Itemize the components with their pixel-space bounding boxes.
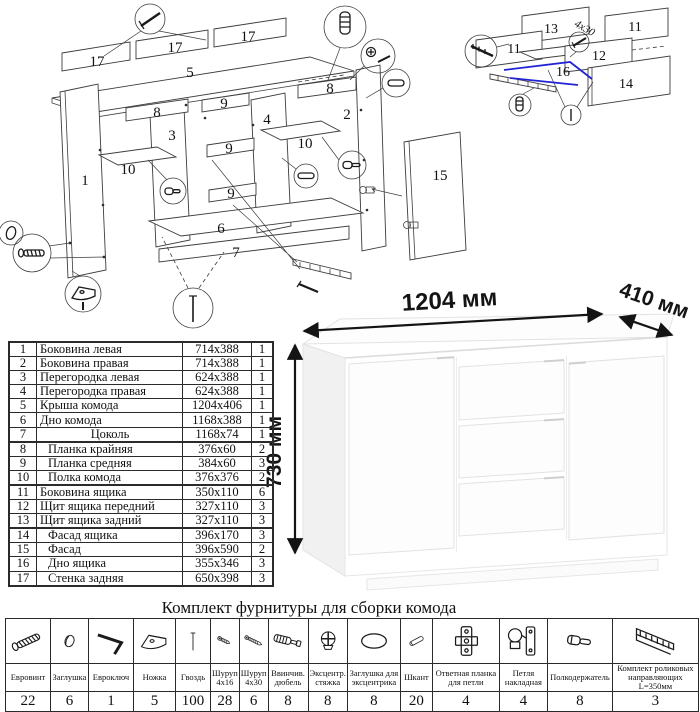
hardware-item-qty: 20 bbox=[400, 692, 432, 712]
parts-cell-size: 714x388 bbox=[183, 342, 252, 357]
hardware-icon-cell bbox=[268, 619, 308, 664]
parts-cell-name: Боковина ящика bbox=[37, 485, 183, 500]
parts-cell-size: 1204x406 bbox=[183, 399, 252, 413]
part-number-label: 3 bbox=[168, 128, 176, 144]
hardware-icon-cell bbox=[89, 619, 134, 664]
part-number-label: 9 bbox=[220, 96, 228, 112]
hardware-item-qty: 8 bbox=[347, 692, 400, 712]
hardware-icon-cell bbox=[400, 619, 432, 664]
parts-cell-qty: 3 bbox=[252, 557, 274, 571]
parts-cell-qty: 2 bbox=[252, 442, 274, 457]
part-number-label: 6 bbox=[217, 221, 225, 237]
parts-table-row: 4Перегородка правая624x3881 bbox=[9, 385, 273, 399]
parts-cell-name: Планка крайняя bbox=[37, 442, 183, 457]
hardware-item-qty: 4 bbox=[432, 692, 499, 712]
parts-cell-num: 2 bbox=[9, 357, 37, 371]
hardware-item-qty: 6 bbox=[51, 692, 89, 712]
hardware-icon-cell bbox=[308, 619, 347, 664]
hardware-kit-table: ЕвровинтЗаглушкаЕвроключНожкаГвоздьШуруп… bbox=[5, 618, 699, 712]
part-number-label: 10 bbox=[121, 162, 136, 178]
hardware-item-qty: 8 bbox=[547, 692, 612, 712]
assembly-instruction-page: { "main_diagram": { "part_labels": [ {"t… bbox=[0, 0, 700, 700]
parts-table-row: 16Дно ящика355x3463 bbox=[9, 557, 273, 571]
hardware-item-qty: 8 bbox=[308, 692, 347, 712]
part-number-label: 1 bbox=[81, 173, 89, 189]
hardware-icon-cell bbox=[176, 619, 211, 664]
parts-cell-num: 4 bbox=[9, 385, 37, 399]
parts-cell-num: 3 bbox=[9, 371, 37, 385]
hardware-item-name: Евровинт bbox=[6, 664, 51, 692]
nail-icon bbox=[139, 13, 160, 29]
hardware-item-qty: 5 bbox=[134, 692, 176, 712]
parts-cell-qty: 3 bbox=[252, 500, 274, 514]
parts-table-row: 14Фасад ящика396x1703 bbox=[9, 528, 273, 543]
hardware-item-qty: 100 bbox=[176, 692, 211, 712]
parts-table-row: 15Фасад396x5902 bbox=[9, 543, 273, 557]
parts-cell-name: Крыша комода bbox=[37, 399, 183, 413]
part-number-label: 7 bbox=[232, 245, 240, 261]
parts-cell-size: 376x60 bbox=[183, 442, 252, 457]
parts-cell-num: 13 bbox=[9, 514, 37, 529]
hardware-item-name: Заглушка bbox=[51, 664, 89, 692]
parts-cell-size: 396x170 bbox=[183, 528, 252, 543]
hardware-icons-row bbox=[6, 619, 699, 664]
cap-icon bbox=[52, 622, 87, 660]
shelf-pin-icon bbox=[549, 622, 611, 660]
hardware-item-name: Шкант bbox=[400, 664, 432, 692]
hardware-icon-cell bbox=[612, 619, 698, 664]
hardware-icon-cell bbox=[499, 619, 547, 664]
hardware-item-qty: 22 bbox=[6, 692, 51, 712]
parts-table-row: 5Крыша комода1204x4061 bbox=[9, 399, 273, 413]
part-number-label: 8 bbox=[153, 105, 161, 121]
parts-cell-name: Боковина правая bbox=[37, 357, 183, 371]
parts-cell-qty: 1 bbox=[252, 427, 274, 442]
part-number-label: 16 bbox=[556, 65, 570, 80]
parts-cell-name: Фасад ящика bbox=[37, 528, 183, 543]
parts-cell-qty: 2 bbox=[252, 543, 274, 557]
parts-table-row: 9Планка средняя384x603 bbox=[9, 456, 273, 470]
parts-cell-num: 8 bbox=[9, 442, 37, 457]
parts-cell-qty: 1 bbox=[252, 371, 274, 385]
parts-cell-qty: 1 bbox=[252, 357, 274, 371]
hardware-item-qty: 1 bbox=[89, 692, 134, 712]
parts-cell-name: Планка средняя bbox=[37, 456, 183, 470]
hardware-icon-cell bbox=[432, 619, 499, 664]
parts-cell-name: Стенка задняя bbox=[37, 571, 183, 586]
hardware-item-name: Полкодержатель bbox=[547, 664, 612, 692]
roller-guide bbox=[490, 74, 556, 92]
cap-icon bbox=[5, 225, 18, 240]
screw-small-icon bbox=[212, 622, 238, 660]
parts-table-row: 11Боковина ящика350x1106 bbox=[9, 485, 273, 500]
parts-table-row: 10Полка комода376x3762 bbox=[9, 470, 273, 485]
hexkey-icon bbox=[90, 622, 132, 660]
parts-cell-name: Дно ящика bbox=[37, 557, 183, 571]
part-number-label: 2 bbox=[343, 107, 351, 123]
hardware-icon-cell bbox=[134, 619, 176, 664]
parts-cell-qty: 3 bbox=[252, 514, 274, 529]
cam-icon bbox=[310, 622, 346, 660]
cap-callout bbox=[0, 221, 23, 245]
parts-cell-qty: 6 bbox=[252, 485, 274, 500]
hardware-item-qty: 6 bbox=[239, 692, 268, 712]
parts-cell-name: Дно комода bbox=[37, 413, 183, 427]
part-number-label: 4 bbox=[263, 112, 271, 128]
nail-callout bbox=[548, 70, 593, 125]
parts-cell-size: 1168x74 bbox=[183, 427, 252, 442]
parts-table-row: 2Боковина правая714x3881 bbox=[9, 357, 273, 371]
parts-table-row: 13Щит ящика задний327x1103 bbox=[9, 514, 273, 529]
parts-cell-name: Боковина левая bbox=[37, 342, 183, 357]
hardware-item-name: Евроключ bbox=[89, 664, 134, 692]
hardware-item-qty: 8 bbox=[268, 692, 308, 712]
part-number-label: 9 bbox=[225, 141, 233, 157]
parts-cell-size: 396x590 bbox=[183, 543, 252, 557]
drawer-assembly-diagram: 4x30 131111121614 bbox=[452, 0, 700, 140]
product-dimension-view: 1204 мм 410 мм 730 мм bbox=[270, 287, 700, 617]
hardware-icon-cell bbox=[547, 619, 612, 664]
hardware-item-name: Заглушка для эксцентрика bbox=[347, 664, 400, 692]
parts-table-row: 6Дно комода1168x3881 bbox=[9, 413, 273, 427]
parts-table-row: 1Боковина левая714x3881 bbox=[9, 342, 273, 357]
parts-cell-qty: 3 bbox=[252, 528, 274, 543]
dowel-screw-icon bbox=[340, 12, 350, 34]
parts-cell-size: 355x346 bbox=[183, 557, 252, 571]
oval-cap-icon bbox=[349, 622, 399, 660]
parts-cell-name: Перегородка правая bbox=[37, 385, 183, 399]
foot-icon bbox=[135, 622, 174, 660]
dowel-icon bbox=[298, 173, 314, 179]
dowel-screw-icon bbox=[270, 622, 307, 660]
left-door bbox=[349, 357, 454, 555]
hardware-item-qty: 28 bbox=[211, 692, 240, 712]
part-number-label: 14 bbox=[619, 77, 633, 92]
parts-cell-size: 650x398 bbox=[183, 571, 252, 586]
dowel-icon bbox=[402, 622, 431, 660]
parts-table-body: 1Боковина левая714x38812Боковина правая7… bbox=[9, 342, 273, 586]
foot-icon bbox=[72, 287, 95, 310]
cam-icon bbox=[367, 48, 391, 63]
parts-cell-size: 350x110 bbox=[183, 485, 252, 500]
parts-list-table: 1Боковина левая714x38812Боковина правая7… bbox=[8, 341, 274, 587]
part-number-label: 9 bbox=[227, 186, 235, 202]
nail-icon bbox=[177, 622, 209, 660]
parts-cell-num: 15 bbox=[9, 543, 37, 557]
parts-cell-size: 1168x388 bbox=[183, 413, 252, 427]
parts-cell-name: Щит ящика задний bbox=[37, 514, 183, 529]
hardware-kit-title: Комплект фурнитуры для сборки комода bbox=[9, 598, 609, 618]
parts-cell-qty: 1 bbox=[252, 385, 274, 399]
part-number-label: 15 bbox=[433, 168, 448, 184]
parts-table-row: 8Планка крайняя376x602 bbox=[9, 442, 273, 457]
parts-cell-qty: 2 bbox=[252, 470, 274, 485]
parts-table-row: 7Цоколь1168x741 bbox=[9, 427, 273, 442]
part-number-label: 12 bbox=[592, 49, 606, 64]
parts-cell-size: 327x110 bbox=[183, 500, 252, 514]
parts-cell-num: 14 bbox=[9, 528, 37, 543]
hardware-icon-cell bbox=[347, 619, 400, 664]
right-side-panel bbox=[356, 65, 386, 251]
part-number-label: 10 bbox=[298, 136, 313, 152]
parts-cell-num: 5 bbox=[9, 399, 37, 413]
hardware-item-name: Гвоздь bbox=[176, 664, 211, 692]
parts-cell-qty: 3 bbox=[252, 571, 274, 586]
parts-cell-size: 376x376 bbox=[183, 470, 252, 485]
parts-cell-name: Фасад bbox=[37, 543, 183, 557]
parts-table-row: 3Перегородка левая624x3881 bbox=[9, 371, 273, 385]
part-number-label: 13 bbox=[544, 22, 558, 37]
screw-long-icon bbox=[241, 622, 267, 660]
parts-cell-num: 6 bbox=[9, 413, 37, 427]
hardware-item-name: Эксцентр. стяжка bbox=[308, 664, 347, 692]
commode-illustration bbox=[303, 314, 674, 590]
parts-cell-size: 624x388 bbox=[183, 371, 252, 385]
parts-cell-name: Щит ящика передний bbox=[37, 500, 183, 514]
parts-cell-size: 327x110 bbox=[183, 514, 252, 529]
part-number-label: 17 bbox=[90, 54, 106, 70]
hardware-item-qty: 4 bbox=[499, 692, 547, 712]
parts-cell-size: 624x388 bbox=[183, 385, 252, 399]
hardware-icon-cell bbox=[239, 619, 268, 664]
parts-cell-num: 7 bbox=[9, 427, 37, 442]
hinge-icon bbox=[501, 622, 546, 660]
hardware-icon-cell bbox=[6, 619, 51, 664]
parts-cell-num: 9 bbox=[9, 456, 37, 470]
hardware-quantities-row: 22615100286888204483 bbox=[6, 692, 699, 712]
part-number-label: 11 bbox=[507, 42, 520, 57]
hardware-item-name: Петля накладная bbox=[499, 664, 547, 692]
hardware-item-name: Ножка bbox=[134, 664, 176, 692]
confirmat-icon bbox=[19, 249, 45, 257]
hardware-item-name: Ответная планка для петли bbox=[432, 664, 499, 692]
slide-icon bbox=[614, 622, 697, 660]
parts-table-row: 12Щит ящика передний327x1103 bbox=[9, 500, 273, 514]
hardware-icon-cell bbox=[211, 619, 240, 664]
hardware-item-name: Шуруп 4x16 bbox=[211, 664, 240, 692]
parts-cell-name: Перегородка левая bbox=[37, 371, 183, 385]
parts-cell-num: 10 bbox=[9, 470, 37, 485]
dowel-icon bbox=[388, 80, 404, 86]
width-dimension-label: 1204 мм bbox=[401, 284, 498, 317]
part-number-label: 17 bbox=[241, 29, 257, 45]
parts-cell-qty: 1 bbox=[252, 413, 274, 427]
dowel-screw-callout bbox=[509, 88, 534, 116]
parts-cell-num: 1 bbox=[9, 342, 37, 357]
parts-cell-num: 17 bbox=[9, 571, 37, 586]
drawer-stack bbox=[459, 360, 564, 536]
parts-cell-num: 16 bbox=[9, 557, 37, 571]
parts-cell-size: 714x388 bbox=[183, 357, 252, 371]
hardware-item-qty: 3 bbox=[612, 692, 698, 712]
hardware-names-row: ЕвровинтЗаглушкаЕвроключНожкаГвоздьШуруп… bbox=[6, 664, 699, 692]
confirmat-icon bbox=[7, 622, 49, 660]
parts-cell-qty: 1 bbox=[252, 399, 274, 413]
parts-cell-qty: 3 bbox=[252, 456, 274, 470]
part-number-label: 5 bbox=[186, 65, 194, 81]
part-number-label: 17 bbox=[168, 40, 184, 56]
nail-icon bbox=[189, 296, 197, 322]
parts-cell-qty: 1 bbox=[252, 342, 274, 357]
hardware-item-name: Комплект роликовых направляющих L=350мм bbox=[612, 664, 698, 692]
hardware-icon-cell bbox=[51, 619, 89, 664]
shelf-pin-icon bbox=[343, 162, 360, 169]
hardware-item-name: Ввинчив. дюбель bbox=[268, 664, 308, 692]
parts-cell-name: Цоколь bbox=[37, 427, 183, 442]
parts-cell-num: 12 bbox=[9, 500, 37, 514]
plate-icon bbox=[434, 622, 498, 660]
part-number-label: 8 bbox=[326, 81, 334, 97]
parts-cell-name: Полка комода bbox=[37, 470, 183, 485]
parts-table-row: 17Стенка задняя650x3983 bbox=[9, 571, 273, 586]
parts-cell-num: 11 bbox=[9, 485, 37, 500]
part-number-label: 11 bbox=[628, 20, 641, 35]
dowel-screw-icon bbox=[516, 97, 523, 111]
parts-cell-size: 384x60 bbox=[183, 456, 252, 470]
right-door bbox=[569, 356, 664, 540]
hardware-item-name: Шуруп 4x30 bbox=[239, 664, 268, 692]
